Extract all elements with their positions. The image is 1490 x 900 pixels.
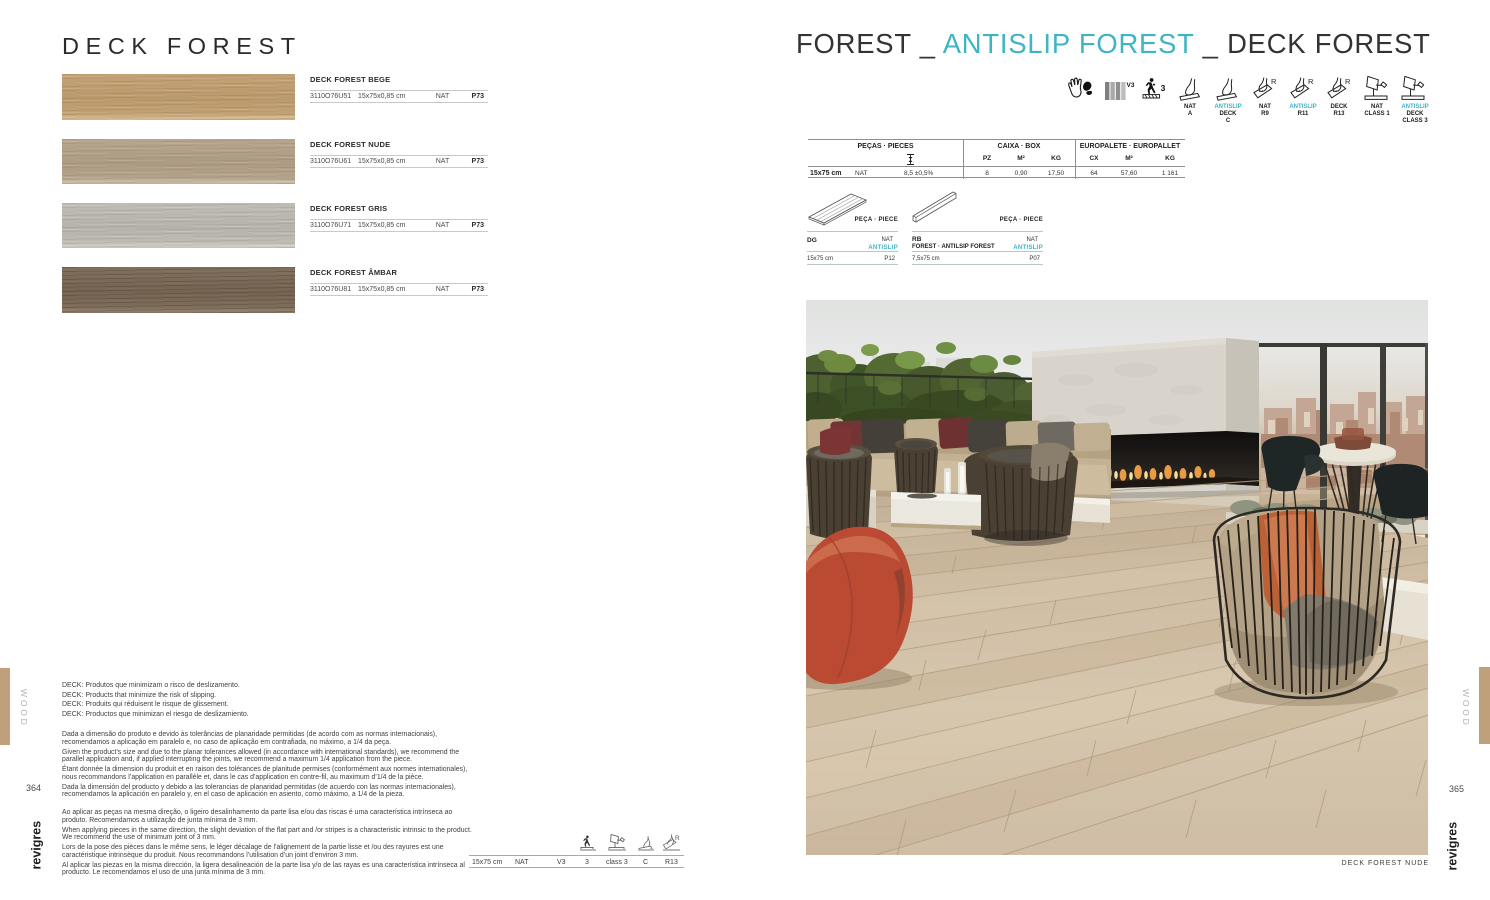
svg-text:R: R bbox=[1345, 77, 1351, 86]
svg-text:R: R bbox=[675, 835, 680, 842]
svg-text:R: R bbox=[1308, 77, 1314, 86]
svg-text:R: R bbox=[1271, 77, 1277, 86]
svg-text:3: 3 bbox=[1161, 83, 1166, 93]
svg-text:V3: V3 bbox=[1127, 82, 1135, 89]
